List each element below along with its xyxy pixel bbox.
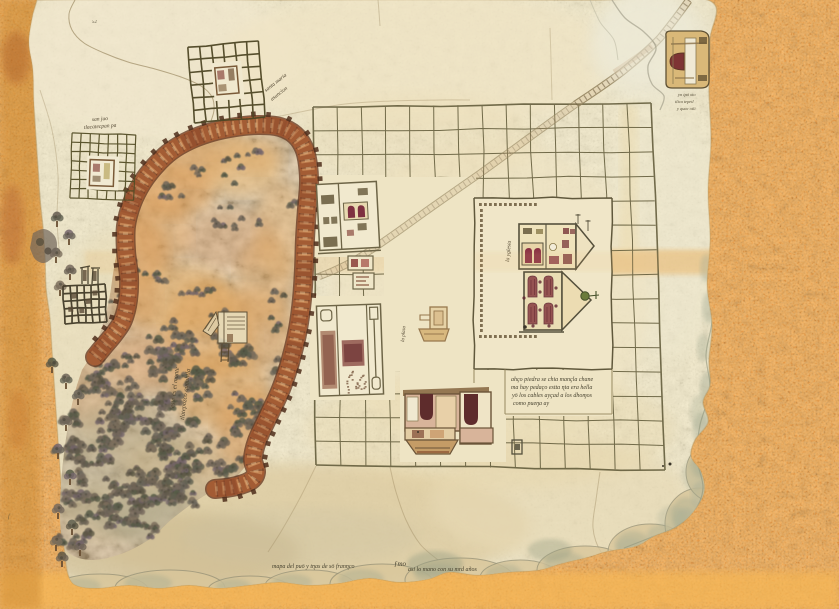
svg-text:52: 52 (92, 20, 98, 25)
svg-text:ƒmo: ƒmo (394, 560, 407, 568)
svg-text:yō los cables ayçad a los dhoɱ: yō los cables ayçad a los dhoɱos (511, 393, 593, 399)
svg-text:san juo: san juo (92, 116, 109, 123)
svg-text:y quac otli: y quac otli (676, 106, 696, 111)
svg-text:ma hay pedaço estta ɳta era he: ma hay pedaço estta ɳta era hella (511, 385, 592, 391)
svg-text:tlica tepetl: tlica tepetl (675, 99, 694, 104)
svg-text:mapa del puō y tɳas de sō fran: mapa del puō y tɳas de sō franɳco (272, 563, 355, 570)
svg-text:ahço piedra se chia mançla cha: ahço piedra se chia mançla chane (511, 377, 593, 383)
svg-text:como pueŋa ay: como pueŋa ay (513, 401, 550, 407)
svg-text:yn ipá oto: yn ipá oto (677, 92, 696, 97)
svg-text:asi lo mano con su mrd años: asi lo mano con su mrd años (408, 567, 477, 573)
